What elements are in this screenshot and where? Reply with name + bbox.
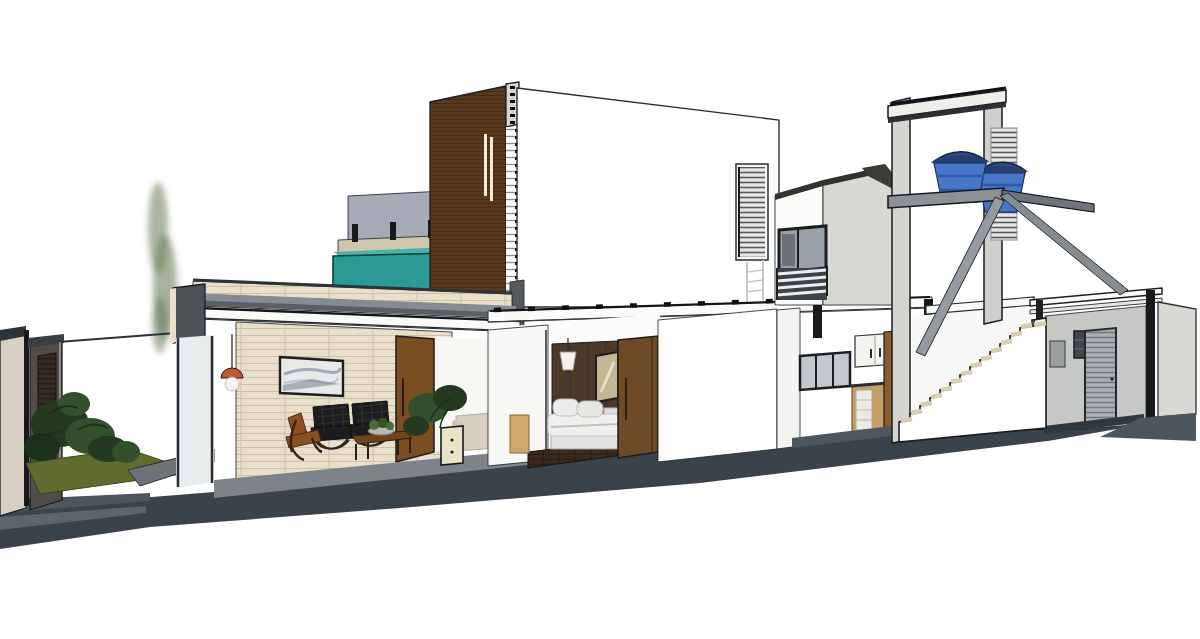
roof-left-cap (173, 284, 205, 343)
glass-corner (176, 335, 214, 488)
beam-post-2 (390, 222, 396, 240)
roof-left-brick-sliver (170, 288, 176, 344)
kitchen-window-band (800, 352, 850, 390)
facade-light-strip-2 (490, 137, 493, 201)
far-right-wall (1158, 302, 1196, 417)
tree-canopy-low (152, 297, 168, 353)
timber-slat-tower: timber-slat-tower (430, 82, 519, 313)
pillow-1 (553, 399, 579, 416)
balcony-railing (777, 266, 827, 300)
plant-cluster-6 (112, 441, 140, 463)
balcony-side-face (823, 172, 903, 305)
tower-column-left (892, 98, 910, 443)
steel-post-1 (813, 302, 822, 338)
pillow-2 (577, 401, 603, 417)
balcony-window (779, 226, 826, 272)
beam-post-1 (352, 224, 358, 242)
lamp-shade (560, 352, 576, 370)
kitchen-left-wall (777, 308, 800, 449)
stone-wall-section (0, 332, 26, 516)
wood-cabinet (510, 415, 529, 453)
meter-box (1050, 341, 1065, 367)
framed-artwork (280, 357, 343, 396)
section-scene: residence-longitudinal-section (0, 0, 1200, 639)
door-knob (1110, 377, 1113, 380)
facade-light-strip-1 (484, 134, 487, 196)
middle-white-wall (658, 309, 777, 462)
plant-cluster-5 (58, 392, 90, 416)
timber-screen-face (430, 86, 506, 313)
wall-cut-edge (24, 330, 29, 506)
louver-slats (739, 167, 765, 257)
pendant-globe (225, 377, 239, 391)
plant-foliage-3 (403, 416, 429, 436)
planter-box (441, 426, 463, 465)
bedroom: bedroom-suite (488, 314, 660, 468)
louver-service-door (1085, 328, 1116, 426)
window-pane-dark (782, 234, 795, 266)
model-viewport[interactable]: residence-longitudinal-section (0, 0, 1200, 639)
tall-louver-window (736, 164, 768, 260)
garage-column-right (1146, 290, 1155, 422)
